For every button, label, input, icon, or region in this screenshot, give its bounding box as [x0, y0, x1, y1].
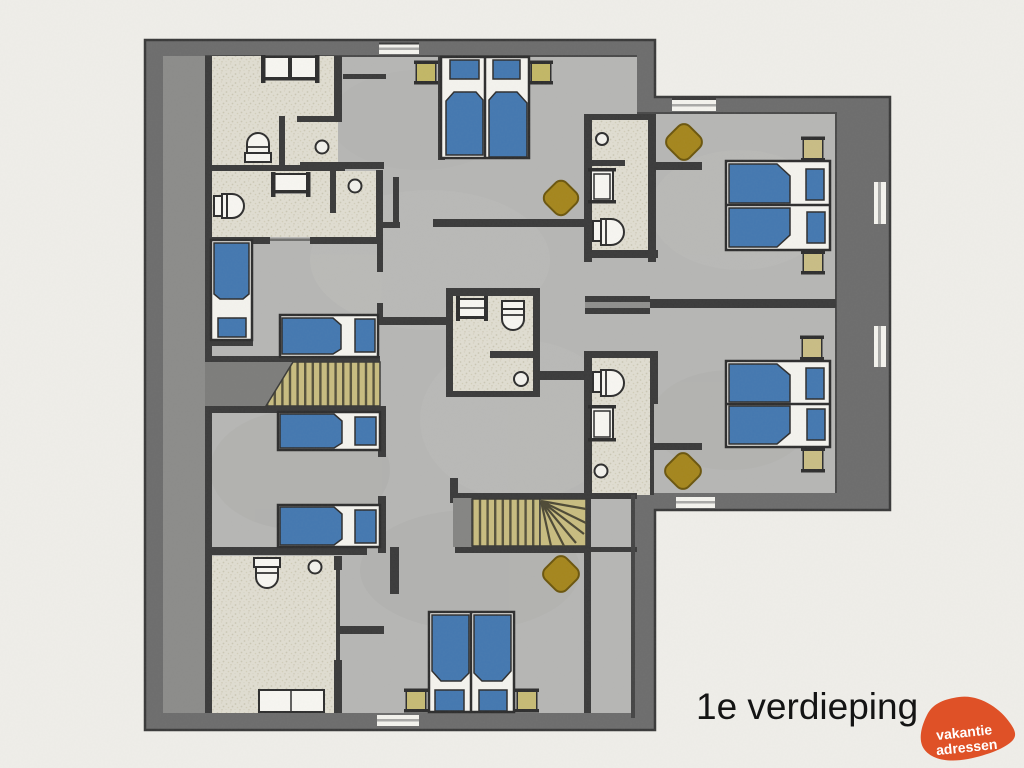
svg-text:1e verdieping: 1e verdieping — [696, 686, 918, 727]
